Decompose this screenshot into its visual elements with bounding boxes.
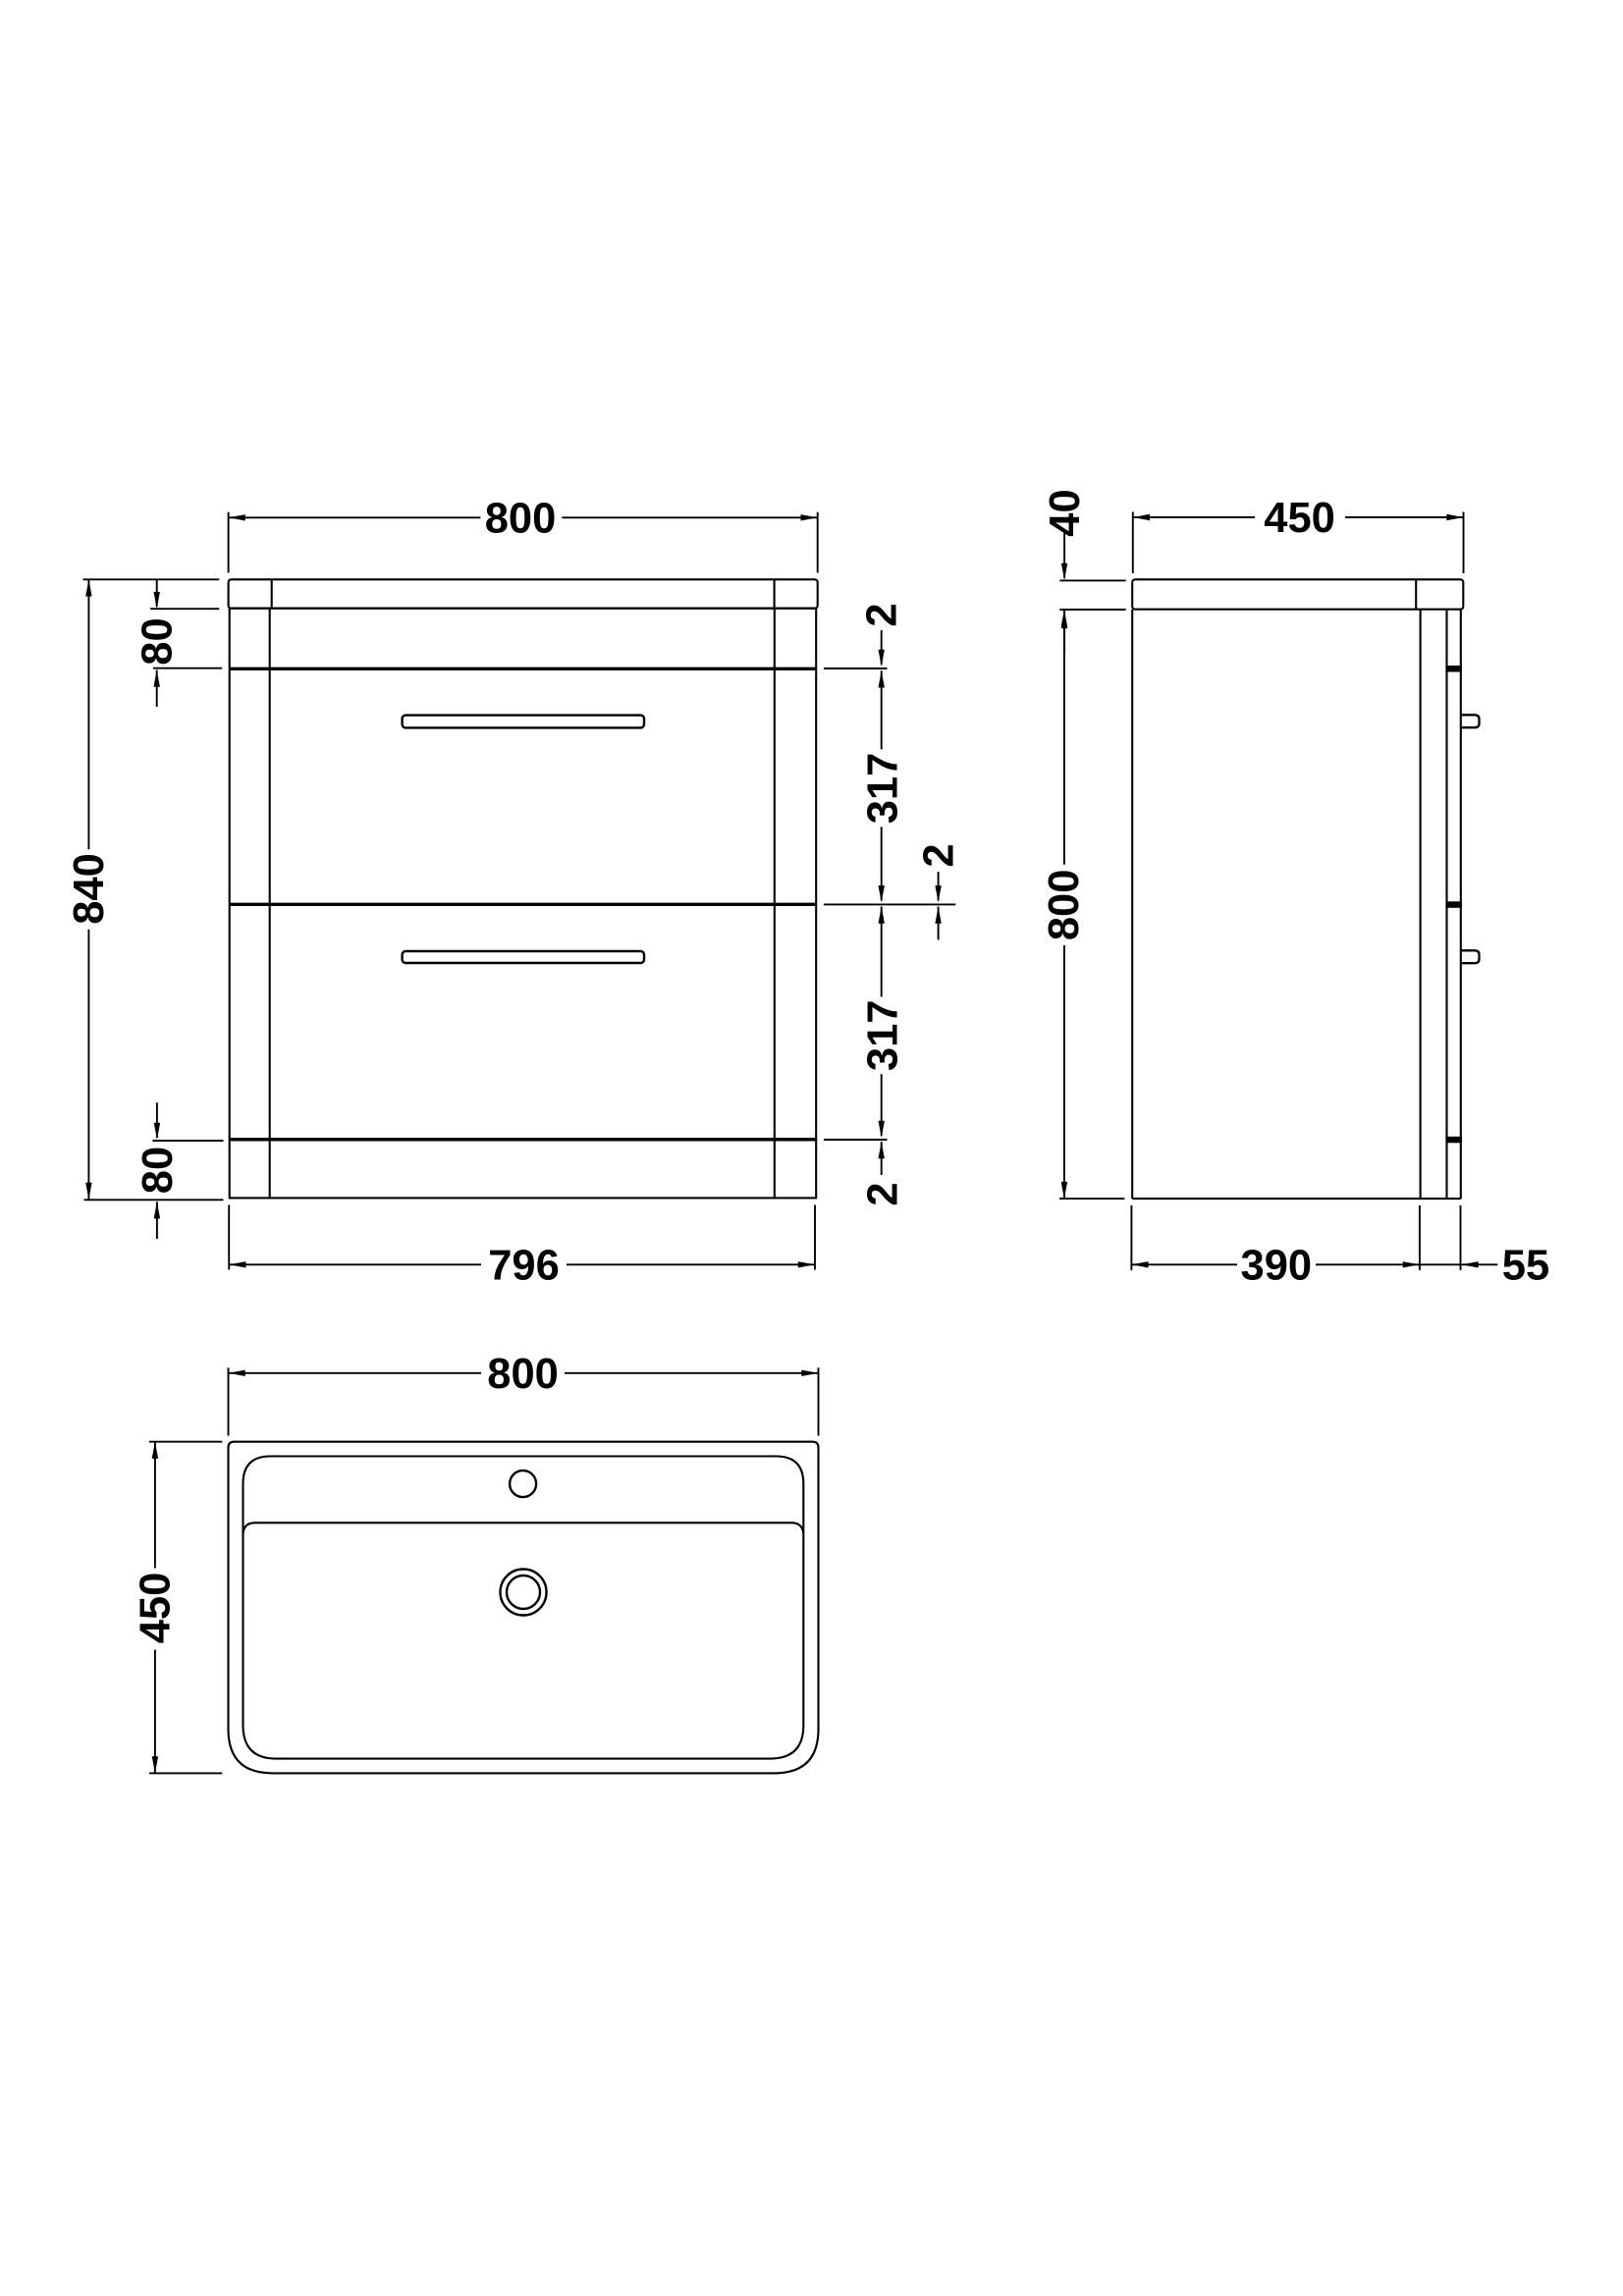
svg-text:800: 800 — [485, 496, 557, 543]
svg-text:80: 80 — [135, 1147, 182, 1194]
svg-text:55: 55 — [1502, 1243, 1549, 1290]
svg-text:390: 390 — [1241, 1243, 1313, 1290]
svg-text:317: 317 — [859, 753, 906, 825]
svg-text:840: 840 — [66, 853, 113, 925]
svg-text:317: 317 — [859, 1000, 906, 1072]
svg-text:80: 80 — [134, 617, 181, 665]
svg-text:796: 796 — [488, 1243, 560, 1290]
svg-text:450: 450 — [133, 1573, 180, 1644]
svg-text:800: 800 — [487, 1351, 559, 1398]
svg-text:40: 40 — [1042, 489, 1089, 536]
svg-text:2: 2 — [859, 1182, 906, 1205]
svg-text:2: 2 — [858, 603, 905, 626]
svg-text:2: 2 — [916, 843, 963, 867]
svg-text:800: 800 — [1041, 870, 1088, 941]
svg-text:450: 450 — [1264, 495, 1335, 542]
